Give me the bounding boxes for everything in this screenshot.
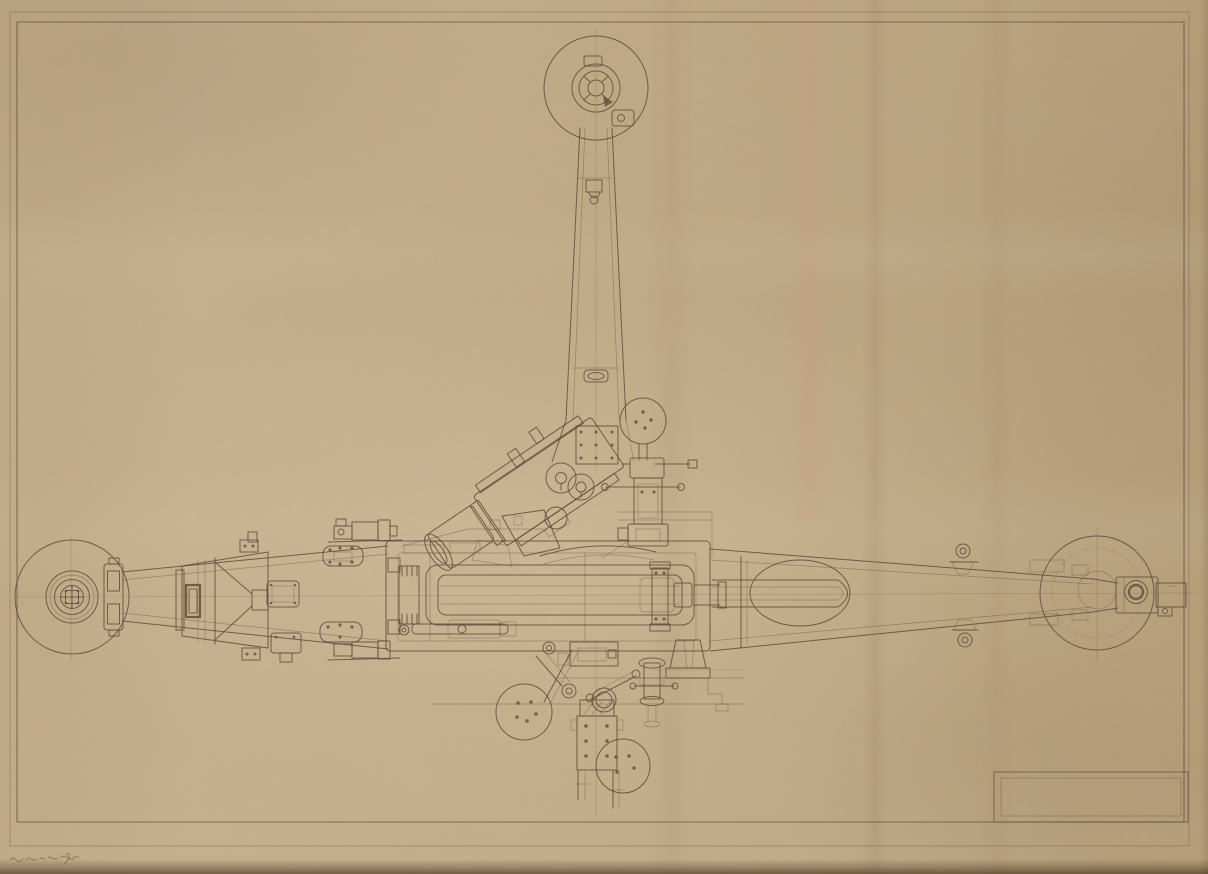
drawing-svg [0,0,1208,874]
drawing-sheet [0,0,1208,874]
title-block-text [1004,786,1180,810]
paper-grain-overlay [0,0,1208,874]
